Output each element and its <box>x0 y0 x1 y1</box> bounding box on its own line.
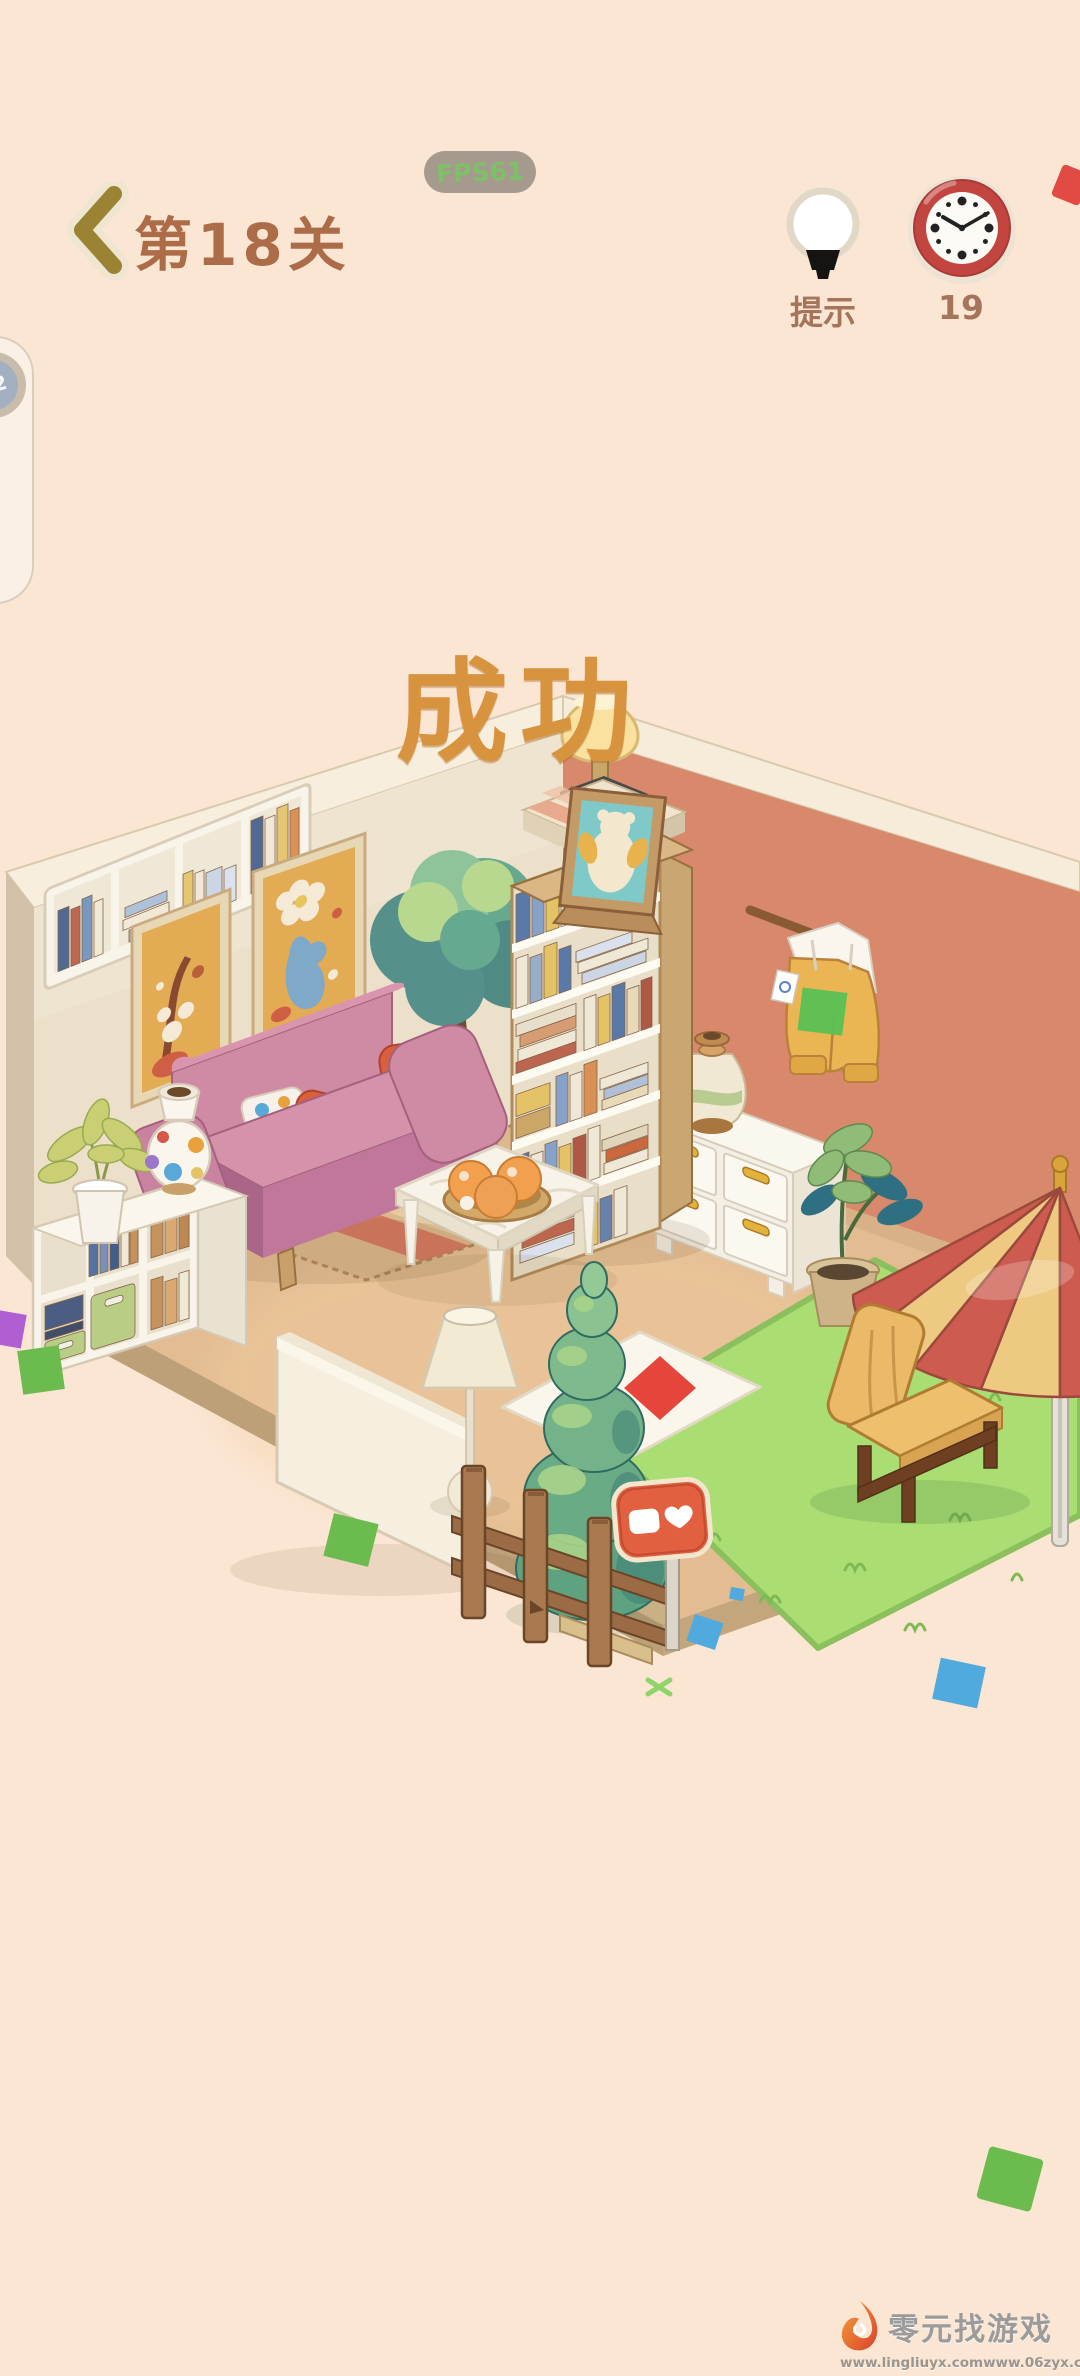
hint-label: 提示 <box>768 286 878 334</box>
watermark: 零元找游戏 www.lingliuyx.com www.06zyx.com <box>840 2300 1078 2371</box>
level-title: 第18关 <box>134 198 351 282</box>
watermark-url-2: www.06zyx.com <box>983 2355 1080 2371</box>
clock-icon <box>906 172 1018 286</box>
fps-counter: FPS61 <box>424 151 536 193</box>
lightbulb-icon <box>768 180 878 284</box>
widget-badge: 22 <box>0 352 26 418</box>
watermark-urls: www.lingliuyx.com www.06zyx.com <box>840 2355 1078 2371</box>
hint-button[interactable]: 提示 <box>768 180 878 334</box>
timer-display: 19 <box>906 172 1016 327</box>
floating-side-widget[interactable]: 22 <box>0 336 34 604</box>
watermark-url-1: www.lingliuyx.com <box>840 2355 983 2371</box>
watermark-title: 零元找游戏 <box>888 2304 1053 2349</box>
success-banner: 成功 <box>0 622 1060 784</box>
timer-value: 19 <box>906 288 1016 327</box>
confetti-on-wall <box>797 987 847 1035</box>
confetti-red <box>1051 164 1080 207</box>
chevron-left-icon <box>62 182 134 282</box>
screen-icon <box>628 1508 660 1535</box>
confetti-green-bottom <box>976 2146 1044 2213</box>
back-button[interactable] <box>62 182 134 282</box>
fps-value: FPS61 <box>435 156 524 188</box>
game-screen: 第18关 FPS61 提示 19 <box>0 0 1080 2376</box>
flame-logo-icon <box>840 2300 882 2352</box>
room-scene <box>0 640 1080 1760</box>
